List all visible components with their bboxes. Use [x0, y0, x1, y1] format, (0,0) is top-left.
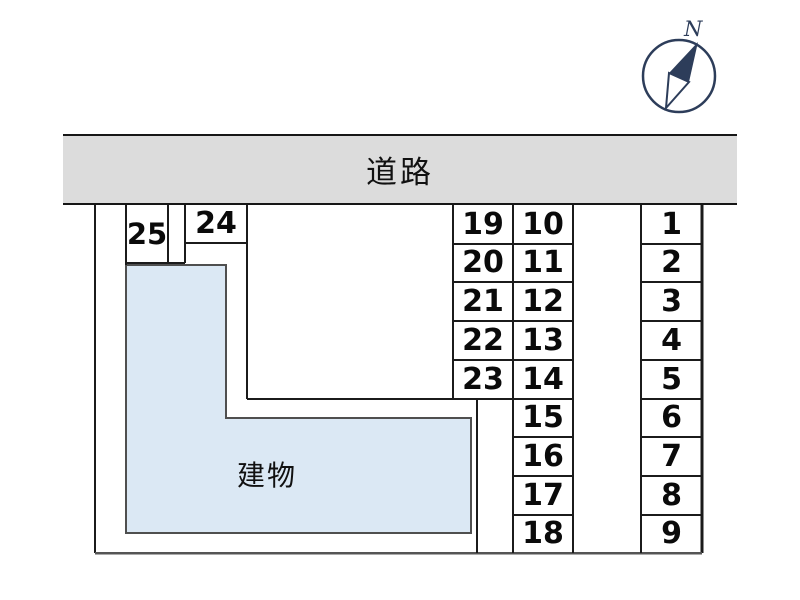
stall-9: 9 [641, 515, 702, 553]
stall-1: 1 [641, 205, 702, 244]
stall-11: 11 [513, 244, 573, 282]
stall-21: 21 [453, 282, 513, 321]
compass-icon [643, 40, 715, 112]
stall-5: 5 [641, 360, 702, 399]
stall-14: 14 [513, 360, 573, 399]
stall-22: 22 [453, 321, 513, 360]
stall-4: 4 [641, 321, 702, 360]
stall-7: 7 [641, 437, 702, 476]
road-label: 道路 [366, 147, 434, 192]
stall-6: 6 [641, 399, 702, 437]
stall-3: 3 [641, 282, 702, 321]
stall-19: 19 [453, 205, 513, 244]
parking-site-plan: 道路 N 建物 1 2 3 4 5 6 7 8 9 10 11 12 13 14… [0, 0, 800, 600]
stall-20: 20 [453, 244, 513, 282]
stall-15: 15 [513, 399, 573, 437]
stall-23: 23 [453, 360, 513, 399]
stall-18: 18 [513, 515, 573, 553]
stall-8: 8 [641, 476, 702, 515]
stall-17: 17 [513, 476, 573, 515]
road-band: 道路 [63, 134, 737, 205]
stall-10: 10 [513, 205, 573, 244]
stall-24: 24 [185, 205, 247, 243]
stall-12: 12 [513, 282, 573, 321]
stall-25: 25 [126, 205, 168, 263]
stall-16: 16 [513, 437, 573, 476]
compass-north-label: N [684, 17, 708, 41]
stall-2: 2 [641, 244, 702, 282]
building-label: 建物 [212, 455, 322, 493]
stall-13: 13 [513, 321, 573, 360]
